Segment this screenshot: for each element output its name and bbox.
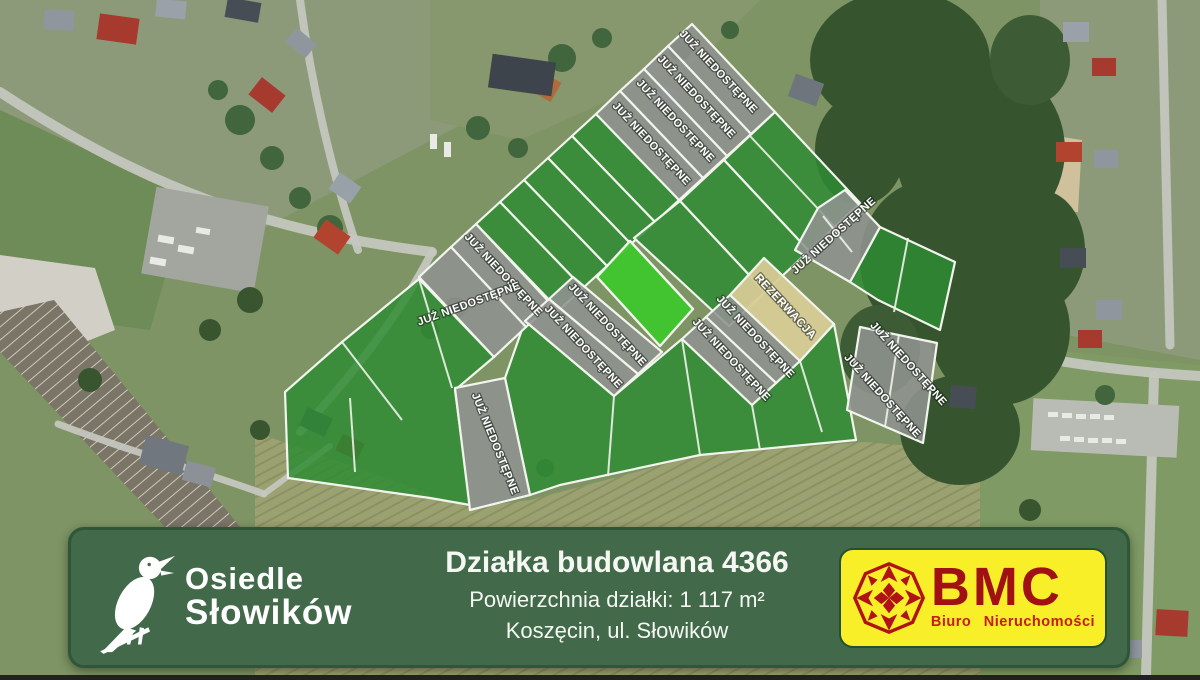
- compass-star-icon: [851, 560, 927, 636]
- listing-title: Działka budowlana 4366: [395, 546, 839, 580]
- agency-name: BMC: [931, 565, 1095, 611]
- nightingale-icon: [95, 538, 181, 658]
- agency-subtitle: Biuro Nieruchomości: [931, 614, 1095, 630]
- flyer-root: JUŻ NIEDOSTĘPNE JUŻ NIEDOSTĘPNE JUŻ NIED…: [0, 0, 1200, 675]
- info-banner: Osiedle Słowików Działka budowlana 4366 …: [68, 527, 1130, 668]
- listing-area: Powierzchnia działki: 1 117 m²: [395, 587, 839, 613]
- listing-info: Działka budowlana 4366 Powierzchnia dzia…: [395, 546, 839, 649]
- agency-panel: BMC Biuro Nieruchomości: [839, 548, 1107, 648]
- estate-logo: Osiedle Słowików: [95, 538, 395, 658]
- estate-name-line2: Słowików: [185, 595, 352, 631]
- estate-name: Osiedle Słowików: [185, 563, 352, 632]
- agency-text: BMC Biuro Nieruchomości: [931, 565, 1095, 630]
- listing-location: Koszęcin, ul. Słowików: [395, 618, 839, 644]
- estate-name-line1: Osiedle: [185, 563, 352, 595]
